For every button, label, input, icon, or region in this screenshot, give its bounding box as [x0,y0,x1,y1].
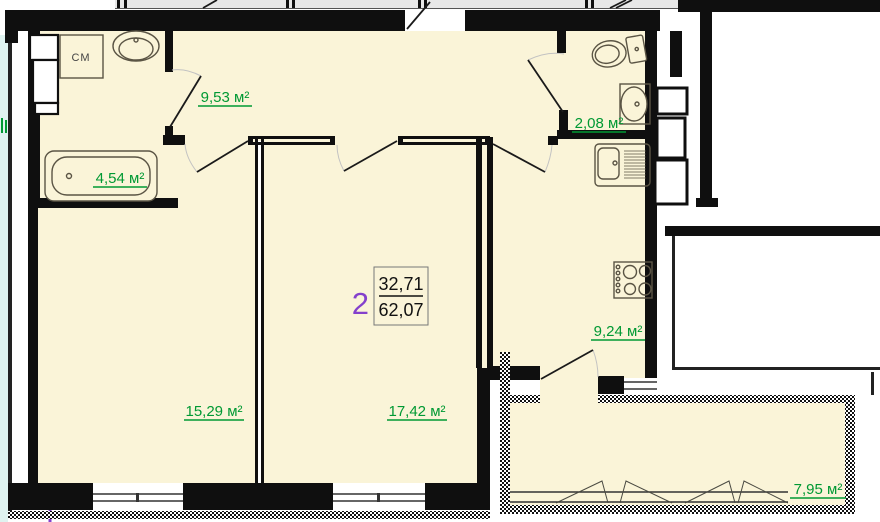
neighbor-vertical-wall [700,12,712,206]
total-area-value: 62,07 [378,300,423,320]
living-room-area-label: 17,42 м² [388,403,445,420]
neighbor-wall-cap [696,198,718,207]
hall-area-label: 9,53 м² [201,89,250,106]
apartment-number: 2 [352,286,369,321]
kitchen-window-recess [624,378,657,394]
floor-fills [38,31,845,505]
hall-partition-a [248,136,335,139]
balcony-passage-floor [540,366,598,403]
floor-plan-drawing: СМ [0,0,880,522]
bottom-wall-block [425,483,490,510]
shaft-box [657,118,685,158]
neighbor-bottom-wall [665,226,880,236]
living-right-wall-lower [477,368,490,483]
kitchen-area-label: 9,24 м² [594,323,643,340]
cap [248,136,253,145]
room-divider-wall [261,139,264,483]
wc-left-wall-top [557,31,566,53]
kitchen-bottom-wall [490,366,540,380]
bottom-wall-block [8,483,93,510]
shaft-box [35,103,58,114]
neighbor-room-wall [672,367,880,370]
balcony-area-label: 7,95 м² [794,481,843,498]
bathroom-sink [113,31,159,61]
neighbor-left-floor [0,35,8,522]
kitchen-right-wall [645,31,657,392]
shaft-box [30,35,58,60]
balcony-door-pier [598,376,624,394]
shaft-wall [670,31,682,77]
bedroom-area-label: 15,29 м² [185,403,242,420]
living-room-floor [263,139,477,483]
balcony-wall-top [510,395,540,403]
neighbor-balcony-wall [871,372,874,395]
partition-stub-left [163,135,185,145]
bathroom-right-wall-top [165,31,173,72]
foundation-hatch [8,511,490,519]
shaft-box [657,88,687,114]
balcony-wall-bottom [500,505,855,514]
cap [330,136,335,145]
balcony-wall-right [845,395,855,513]
room-divider-wall [255,139,258,483]
bottom-wall-block [183,483,333,510]
bedroom-left-wall [28,208,38,490]
shaft-box [33,60,58,103]
top-right-wall [678,0,880,12]
wc-left-wall-bottom [559,110,568,138]
balcony-wall-top [598,395,853,403]
window-mullion [136,493,139,502]
neighbor-left-wall [8,35,12,515]
kitchen-floor [482,139,645,379]
window-mullion [377,493,380,502]
washing-machine-label: СМ [72,52,91,64]
top-wall-left [5,10,405,31]
living-kitchen-wall [487,137,493,368]
neighbor-room-wall [672,236,675,369]
floor-plan-page: СМ [0,0,880,522]
bathroom-area-label: 4,54 м² [96,170,145,187]
washing-machine: СМ [60,35,103,78]
partition-stub-right [548,136,558,145]
living-kitchen-wall [476,137,482,368]
balcony-wall-left [500,352,510,512]
shaft-box [655,160,687,204]
wc-area-label: 2,08 м² [575,115,624,132]
living-area-value: 32,71 [378,274,423,294]
cap [398,136,403,145]
top-wall-right [465,10,660,31]
top-left-stub [5,10,18,43]
